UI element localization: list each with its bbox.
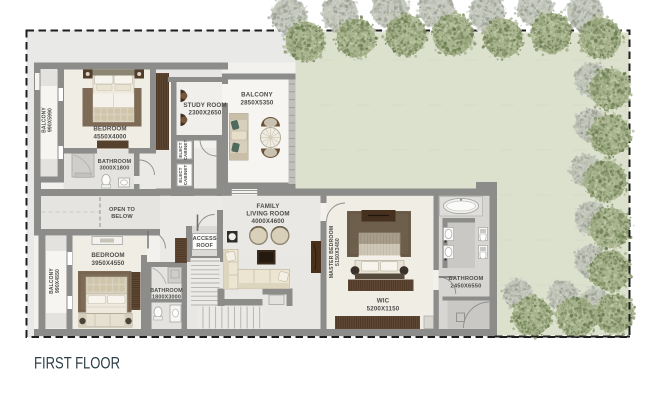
svg-text:1800X3000: 1800X3000 bbox=[152, 294, 181, 300]
svg-text:ACCESS: ACCESS bbox=[193, 236, 217, 242]
svg-text:3000X1800: 3000X1800 bbox=[100, 166, 130, 172]
svg-text:4550X4000: 4550X4000 bbox=[93, 133, 126, 140]
svg-text:BALCONY: BALCONY bbox=[41, 107, 47, 133]
svg-text:ROOF: ROOF bbox=[196, 243, 213, 249]
svg-text:FAMILY: FAMILY bbox=[256, 203, 280, 210]
svg-text:BEDROOM: BEDROOM bbox=[93, 126, 126, 133]
svg-text:990X5990: 990X5990 bbox=[48, 108, 54, 132]
svg-text:BEDROOM: BEDROOM bbox=[91, 252, 124, 259]
svg-text:LIVING ROOM: LIVING ROOM bbox=[246, 210, 289, 217]
svg-text:CABINET: CABINET bbox=[183, 140, 188, 161]
svg-text:2850X5350: 2850X5350 bbox=[240, 99, 273, 106]
svg-text:BELOW: BELOW bbox=[111, 214, 133, 220]
svg-text:CABINET: CABINET bbox=[183, 165, 188, 186]
svg-text:WIC: WIC bbox=[377, 298, 390, 305]
svg-text:MASTER BEDROOM: MASTER BEDROOM bbox=[329, 226, 335, 279]
svg-text:4000X4600: 4000X4600 bbox=[251, 218, 284, 225]
svg-text:5150X3450: 5150X3450 bbox=[335, 238, 341, 266]
svg-text:BALCONY: BALCONY bbox=[241, 92, 273, 99]
svg-text:ELECT: ELECT bbox=[178, 142, 183, 157]
svg-text:2300X2650: 2300X2650 bbox=[188, 109, 221, 116]
svg-text:STUDY ROOM: STUDY ROOM bbox=[183, 102, 226, 109]
svg-text:OPEN TO: OPEN TO bbox=[109, 207, 136, 213]
svg-text:BALCONY: BALCONY bbox=[49, 268, 55, 294]
svg-text:FIRST FLOOR: FIRST FLOOR bbox=[34, 355, 120, 373]
svg-text:3950X4550: 3950X4550 bbox=[91, 260, 124, 267]
svg-text:ELECT: ELECT bbox=[178, 167, 183, 182]
svg-text:990X4550: 990X4550 bbox=[55, 269, 61, 293]
svg-text:BATHROOM: BATHROOM bbox=[150, 288, 183, 294]
svg-text:BATHROOM: BATHROOM bbox=[98, 159, 132, 165]
svg-text:5200X1150: 5200X1150 bbox=[367, 305, 400, 312]
